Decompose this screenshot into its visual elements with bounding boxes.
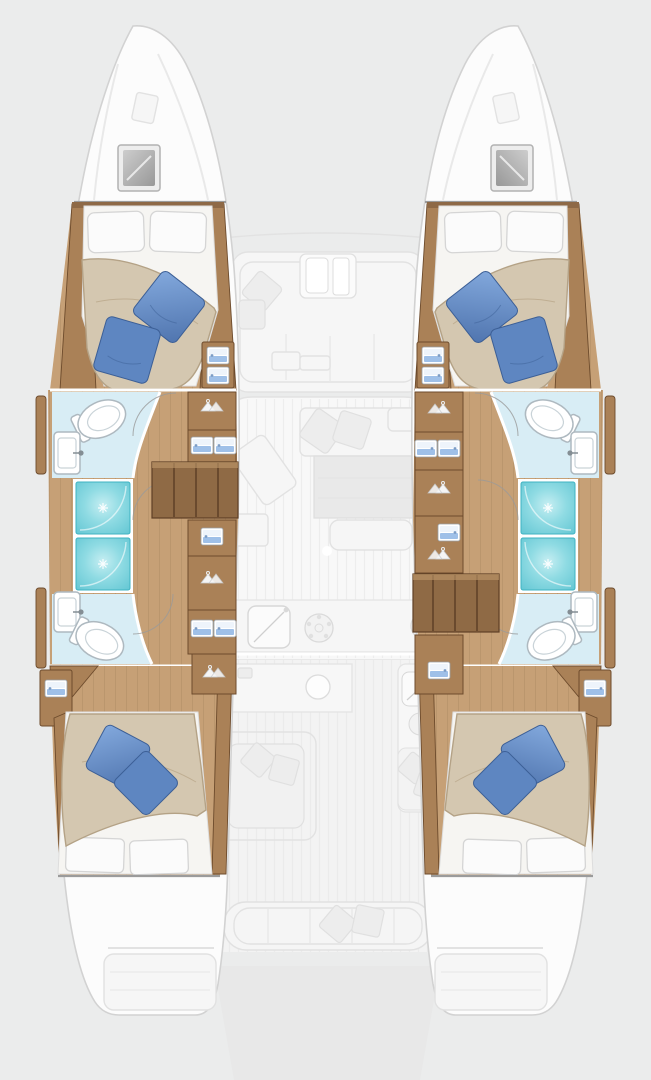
- foredeck-step: [300, 356, 330, 370]
- aft-bench: [224, 902, 432, 950]
- chart-seat: [234, 514, 268, 546]
- galley-counter: [232, 600, 437, 654]
- port-swim-platform: [104, 954, 216, 1010]
- cockpit-counter: [232, 664, 352, 712]
- mast-foot: [322, 546, 332, 556]
- foredeck-seat: [239, 300, 265, 329]
- foredeck-step: [272, 352, 300, 370]
- stove-burner: [305, 614, 333, 642]
- starboard-companionway-stairs: [413, 574, 499, 632]
- saloon: [230, 397, 437, 660]
- galley-sink: [248, 606, 290, 648]
- port-companionway-stairs: [152, 462, 238, 518]
- starboard-hull-wardrobes: [415, 392, 463, 694]
- floor-plan-canvas: [0, 0, 651, 1080]
- bench-cushion: [351, 904, 384, 937]
- saloon-sofa: [298, 407, 424, 456]
- cockpit-door: [300, 254, 356, 298]
- counter-sink: [306, 675, 330, 699]
- starboard-swim-platform: [435, 954, 547, 1010]
- saloon-table: [314, 456, 422, 518]
- saloon-bench: [330, 520, 412, 550]
- catamaran-floor-plan: [0, 0, 651, 1080]
- tender-platform: [214, 966, 440, 1080]
- port-hull-wardrobes: [188, 392, 236, 694]
